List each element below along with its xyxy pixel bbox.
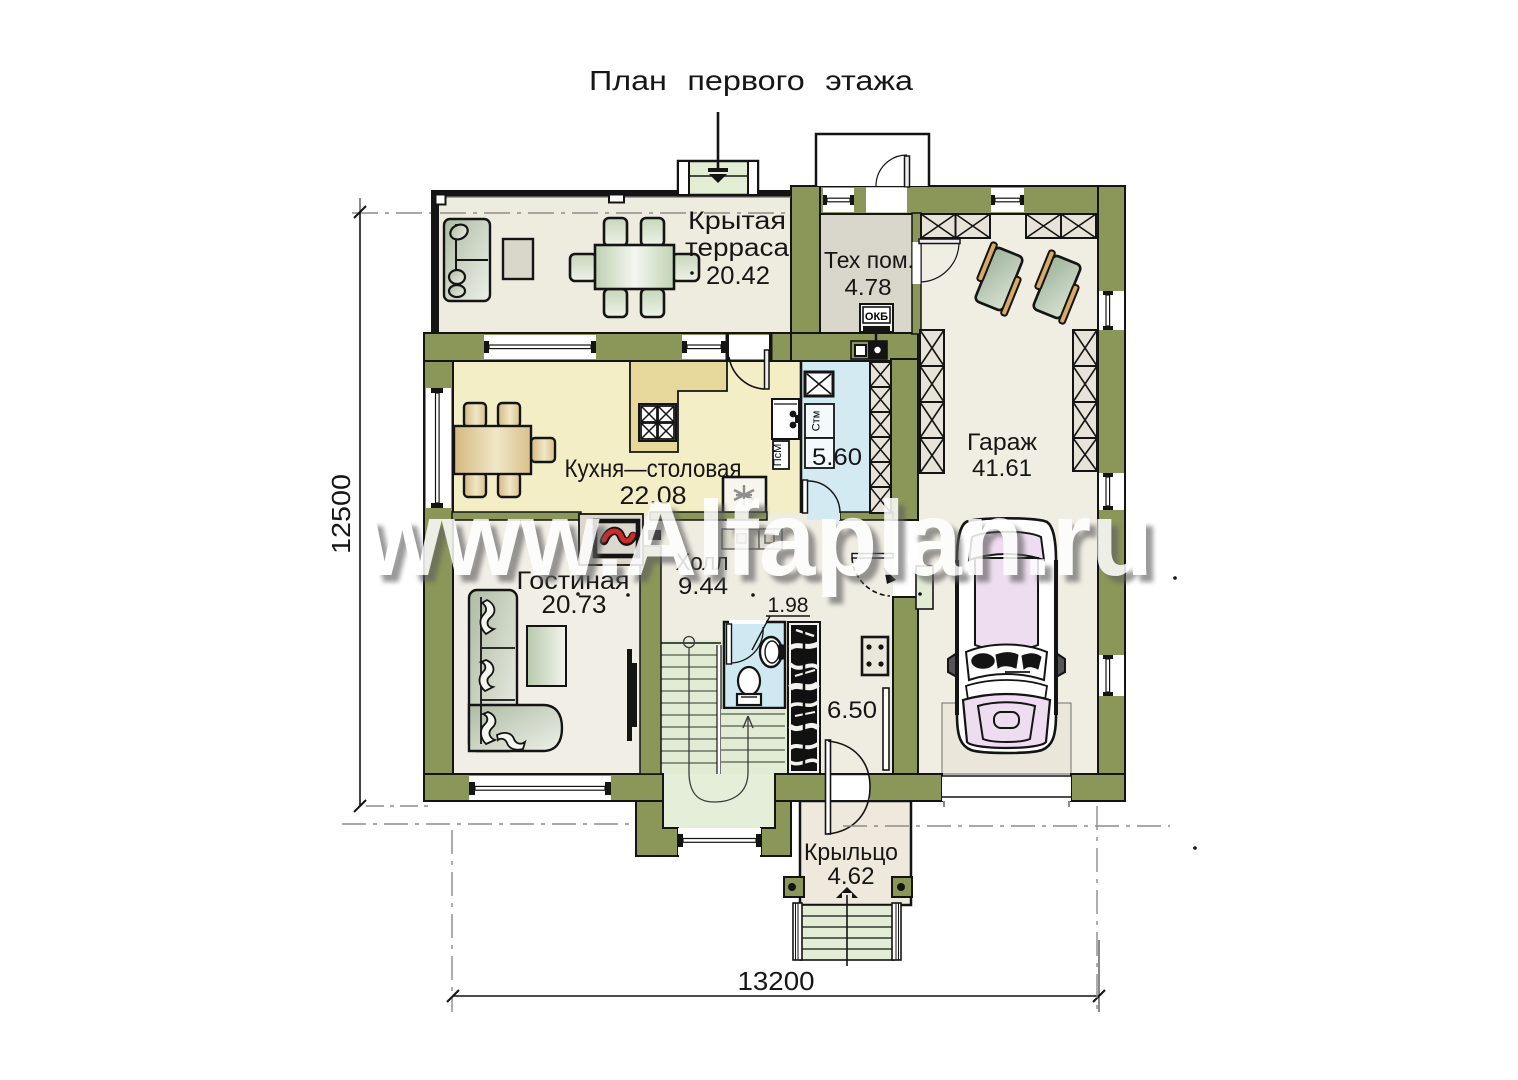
svg-text:Крытая: Крытая bbox=[688, 207, 786, 235]
svg-text:5.60: 5.60 bbox=[812, 444, 862, 471]
svg-text:12500: 12500 bbox=[326, 474, 356, 554]
svg-text:13200: 13200 bbox=[738, 966, 815, 996]
svg-text:6.50: 6.50 bbox=[827, 697, 877, 724]
svg-text:План первого этажа: План первого этажа bbox=[589, 65, 913, 96]
svg-text:Тех пом.: Тех пом. bbox=[824, 247, 914, 273]
svg-text:Гараж: Гараж bbox=[967, 429, 1037, 456]
svg-text:терраса: терраса bbox=[685, 234, 789, 262]
svg-text:41.61: 41.61 bbox=[972, 455, 1032, 482]
svg-text:www.Alfaplan.ru: www.Alfaplan.ru bbox=[362, 480, 1153, 598]
svg-text:Крыльцо: Крыльцо bbox=[804, 839, 898, 866]
svg-text:4.62: 4.62 bbox=[828, 863, 875, 890]
svg-text:Стм: Стм bbox=[811, 411, 823, 432]
svg-text:20.42: 20.42 bbox=[706, 262, 770, 290]
svg-text:ОКБ: ОКБ bbox=[865, 311, 888, 323]
svg-text:4.78: 4.78 bbox=[845, 274, 892, 300]
svg-text:Кухня—столовая: Кухня—столовая bbox=[565, 455, 742, 483]
svg-text:ПсМ: ПсМ bbox=[772, 444, 784, 467]
